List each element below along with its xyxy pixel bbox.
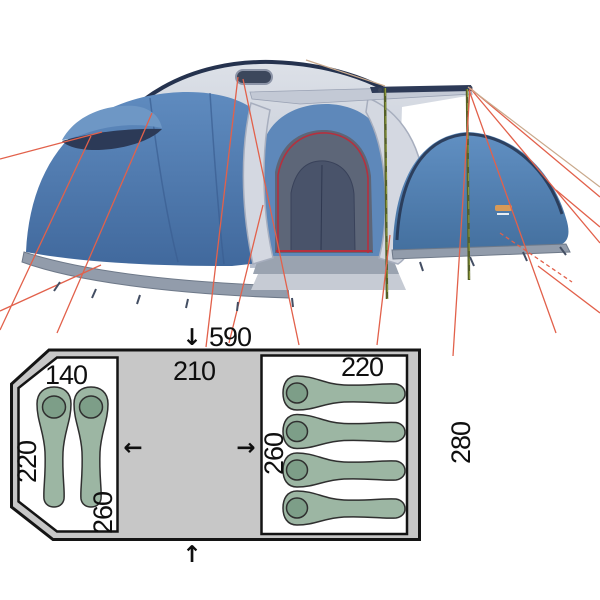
dim-vestibule-width: 210 — [173, 356, 215, 386]
floor-plan: ↓ 590 210 140 220 260 220 260 280 ← → ↑ — [12, 322, 477, 568]
porch-ground-mat — [251, 274, 406, 290]
dim-left-room-length: 260 — [88, 492, 118, 534]
tent-product-sheet: ↓ 590 210 140 220 260 220 260 280 ← → ↑ — [0, 0, 600, 600]
dim-left-room-side: 220 — [12, 441, 42, 483]
right-dome — [393, 132, 568, 250]
roof-vent-window — [236, 70, 272, 84]
left-room-door-arrow-icon: ← — [123, 435, 142, 461]
dim-left-room-width: 140 — [45, 360, 87, 390]
product-image: ↓ 590 210 140 220 260 220 260 280 ← → ↑ — [0, 0, 600, 600]
inner-door — [291, 161, 355, 251]
entrance-arrow-up-icon: ↑ — [182, 542, 201, 568]
porch-floor — [253, 256, 399, 274]
tent-photo — [0, 60, 600, 356]
dim-right-room-length: 260 — [259, 433, 289, 475]
dim-total-depth: 280 — [446, 422, 476, 464]
awning-corner-knob — [378, 88, 382, 92]
dim-total-width: 590 — [209, 322, 251, 352]
dim-right-room-width: 220 — [341, 352, 383, 382]
right-room-door-arrow-icon: → — [236, 435, 255, 461]
entrance-arrow-down-icon: ↓ — [182, 325, 201, 351]
